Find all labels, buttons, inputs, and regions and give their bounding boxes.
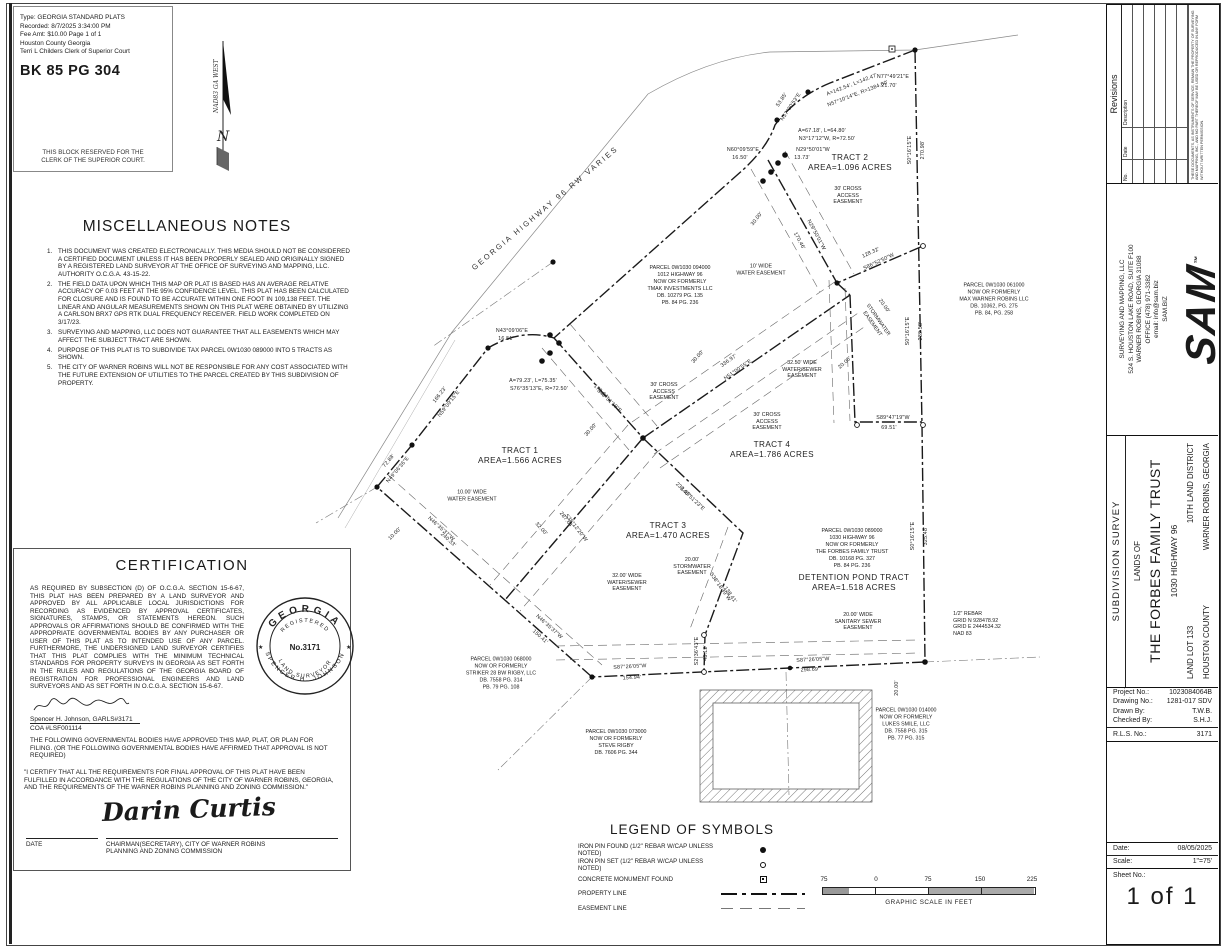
road-name-label: GEORGIA HIGHWAY 96 RW VARIES	[470, 144, 620, 272]
property-line-icon	[720, 893, 806, 895]
parcel-note: PARCEL 0W1030 014000NOW OR FORMERLYLUKES…	[876, 708, 937, 743]
revisions-table: No.DateDescription	[1122, 5, 1188, 183]
easement-note: 10' WIDEWATER EASEMENT	[736, 263, 785, 276]
pin-found-glyph	[760, 847, 766, 853]
revisions-empty-cell	[1144, 5, 1155, 127]
legend-item: PROPERTY LINE	[578, 887, 806, 902]
dimension-label: S2°36'43"E	[694, 637, 700, 666]
revisions-column-header: Description	[1122, 5, 1133, 127]
project-info-label: Project No.:	[1113, 689, 1149, 696]
legend-item-label: CONCRETE MONUMENT FOUND	[578, 876, 720, 883]
parcel-note: PARCEL 0W1030 068000NOW OR FORMERLYSTRIK…	[466, 657, 536, 692]
revisions-section: Revisions No.DateDescription THESE DOCUM…	[1107, 5, 1218, 184]
easement-line-icon	[720, 908, 806, 909]
revisions-column-header: No.	[1122, 159, 1133, 183]
sheet-label: Sheet No.:	[1113, 872, 1212, 879]
legend-item-label: PROPERTY LINE	[578, 890, 720, 897]
dimension-label: 20.00'	[877, 298, 891, 314]
project-info-row: Checked By:S.H.J.	[1107, 715, 1218, 724]
legend-title: LEGEND OF SYMBOLS	[578, 822, 806, 837]
easement-note: 20.00' WIDESANITARY SEWEREASEMENT	[835, 612, 882, 632]
pin-set-icon	[720, 862, 806, 868]
project-title-section: SUBDIVISION SURVEY LANDS OF THE FORBES F…	[1107, 435, 1218, 688]
scale-tick: 75	[924, 876, 931, 883]
date-value: 08/05/2025	[1178, 845, 1213, 852]
dimension-label: 30.00'	[750, 211, 764, 227]
city: WARNER ROBINS, GEORGIA	[1202, 443, 1211, 550]
site-address: 1030 HIGHWAY 96	[1169, 435, 1179, 687]
project-info-value: T.W.B.	[1192, 708, 1212, 715]
project-info-section: Project No.:1023084064BDrawing No.:1281-…	[1107, 687, 1218, 943]
company-address-line: email: info@sam.biz	[1153, 183, 1162, 435]
dimension-label: 10.00'	[387, 526, 402, 541]
tract-label: TRACT 3AREA=1.470 ACRES	[626, 521, 710, 541]
dimension-label: S48°51'19"E	[595, 388, 622, 414]
property-line-glyph	[721, 893, 805, 895]
scale-label: Scale:	[1113, 858, 1132, 865]
company-address-line: WARNER ROBINS, GEORGIA 31088	[1136, 183, 1145, 435]
stamp-area	[1107, 742, 1218, 843]
company-address-line: OFFICE (478) 971-3382	[1145, 183, 1154, 435]
scale-tick: 225	[1027, 876, 1038, 883]
dimension-label: S0°16'15"E	[910, 522, 916, 551]
dimension-label: N43°09'06"E	[496, 328, 528, 334]
dimension-label: S46°51'23"E	[678, 486, 705, 512]
dimension-label: 20.00'	[894, 680, 900, 695]
legend-item-label: IRON PIN FOUND (1/2" REBAR W/CAP UNLESS …	[578, 843, 720, 857]
sheet-number-box: Sheet No.: 1 of 1	[1107, 869, 1218, 914]
easement-note: 30' CROSSACCESSEASEMENT	[752, 412, 781, 432]
dimension-label: 30.00'	[584, 422, 599, 438]
dimension-label: 16.51'	[498, 336, 513, 342]
company-address-line: SAM.BIZ	[1162, 183, 1171, 435]
land-district: 10TH LAND DISTRICT	[1186, 443, 1195, 523]
easement-note: 20.00'STORMWATEREASEMENT	[673, 557, 711, 577]
map-labels: GEORGIA HIGHWAY 96 RW VARIESTRACT 1AREA=…	[0, 0, 1227, 949]
dimension-label: 48.12'	[703, 645, 709, 660]
sheet-value: 1 of 1	[1113, 883, 1212, 911]
easement-note: 30' CROSSACCESSEASEMENT	[649, 382, 678, 402]
dimension-label: S89°47'19"W	[876, 415, 909, 421]
project-info-row: Drawing No.:1281-017 SDV	[1107, 696, 1218, 705]
parcel-note: PARCEL 0W1030 0890001030 HIGHWAY 96NOW O…	[816, 528, 889, 570]
project-info-value: S.H.J.	[1193, 717, 1212, 724]
survey-type: SUBDIVISION SURVEY	[1107, 435, 1126, 687]
dimension-label: 30.00'	[691, 349, 706, 365]
easement-note: 30' CROSSACCESSEASEMENT	[833, 186, 862, 206]
parcel-note: PARCEL 0W1030 0940001012 HIGHWAY 96NOW O…	[647, 265, 712, 307]
project-info-label: Drawn By:	[1113, 708, 1145, 715]
dimension-label: 298.69'	[801, 667, 820, 674]
revisions-empty-cell	[1133, 127, 1144, 159]
dimension-label: 150.41'	[531, 629, 549, 646]
monument-icon	[720, 876, 806, 883]
dimension-label: S0°16'15"E	[905, 317, 911, 346]
dimension-label: 154.94'	[623, 675, 642, 682]
dimension-label: 20.00'	[837, 356, 853, 371]
owner-name: THE FORBES FAMILY TRUST	[1147, 435, 1163, 687]
project-info-value: 1023084064B	[1169, 689, 1212, 696]
pin-set-glyph	[760, 862, 766, 868]
dimension-label: 128.32'	[861, 246, 880, 259]
easement-note: 32.00' WIDEWATER/SEWEREASEMENT	[607, 573, 646, 593]
monument-glyph	[760, 876, 767, 883]
company-section: SURVEYING AND MAPPING, LLC524 S. HOUSTON…	[1107, 183, 1218, 436]
easement-note: 32.50' WIDEWATER/SEWEREASEMENT	[782, 360, 821, 380]
company-address: SURVEYING AND MAPPING, LLC524 S. HOUSTON…	[1119, 183, 1171, 435]
dimension-label: 325.48'	[923, 527, 929, 546]
scale-bar	[822, 887, 1036, 895]
graphic-scale: 75075150225 GRAPHIC SCALE IN FEET	[822, 876, 1036, 906]
dimension-label: A=67.18', L=64.80'	[798, 128, 846, 134]
project-info-value: 1281-017 SDV	[1167, 698, 1212, 705]
project-info-row: Drawn By:T.W.B.	[1107, 705, 1218, 714]
parcel-note: PARCEL 0W1030 073000NOW OR FORMERLYSTEVE…	[586, 729, 647, 757]
plat-sheet: Type: GEORGIA STANDARD PLATSRecorded: 8/…	[0, 0, 1227, 949]
revisions-empty-cell	[1166, 5, 1177, 127]
land-lot: LAND LOT 133	[1186, 626, 1195, 679]
dimension-label: S0°16'15"E	[907, 136, 913, 165]
dimension-label: S87°26'05"W	[613, 663, 647, 671]
legend-item: IRON PIN SET (1/2" REBAR W/CAP UNLESS NO…	[578, 858, 806, 873]
sam-logo: SAM™	[1177, 183, 1218, 436]
legend-item-label: EASEMENT LINE	[578, 905, 720, 912]
tract-label: TRACT 4AREA=1.786 ACRES	[730, 440, 814, 460]
revisions-empty-cell	[1166, 127, 1177, 159]
legend-item: IRON PIN FOUND (1/2" REBAR W/CAP UNLESS …	[578, 843, 806, 858]
dimension-label: 270.98'	[920, 141, 926, 160]
revisions-empty-cell	[1155, 127, 1166, 159]
dimension-label: 239.58'	[918, 322, 924, 341]
revisions-column-header: Date	[1122, 127, 1133, 159]
tract-label: TRACT 1AREA=1.566 ACRES	[478, 446, 562, 466]
revisions-empty-cell	[1133, 5, 1144, 127]
revisions-empty-cell	[1155, 5, 1166, 127]
dimension-label: 72.88'	[382, 453, 397, 469]
easement-line-glyph	[721, 908, 805, 909]
legend-rows: IRON PIN FOUND (1/2" REBAR W/CAP UNLESS …	[578, 843, 806, 916]
scale-caption: GRAPHIC SCALE IN FEET	[822, 899, 1036, 906]
tract-label: DETENTION POND TRACTAREA=1.518 ACRES	[799, 573, 910, 593]
dimension-label: 32.00'	[534, 521, 549, 537]
county: HOUSTON COUNTY	[1202, 605, 1211, 679]
rls-value: 3171	[1197, 731, 1212, 738]
dimension-label: S87°26'05"W	[796, 656, 830, 664]
easement-note: 10.00' WIDEWATER EASEMENT	[447, 489, 496, 502]
revisions-title: Revisions	[1107, 5, 1122, 183]
legend-item: CONCRETE MONUMENT FOUND	[578, 872, 806, 887]
date-label: Date:	[1113, 845, 1129, 852]
dimension-label: S76°35'13"E, R=72.50'	[510, 386, 568, 392]
revisions-empty-cell	[1155, 159, 1166, 183]
revisions-empty-cell	[1177, 5, 1188, 127]
dimension-label: 69.51'	[881, 425, 896, 431]
scale-value: 1"=75'	[1193, 858, 1212, 865]
dimension-label: 170.46'	[792, 231, 806, 250]
pin-found-icon	[720, 847, 806, 853]
dimension-label: 21.70'	[881, 83, 896, 89]
legend-item: EASEMENT LINE	[578, 901, 806, 916]
title-block-sidebar: Revisions No.DateDescription THESE DOCUM…	[1106, 4, 1220, 945]
project-info-rows: Project No.:1023084064BDrawing No.:1281-…	[1107, 687, 1218, 724]
lands-of-label: LANDS OF	[1133, 435, 1142, 687]
project-info-label: Drawing No.:	[1113, 698, 1153, 705]
dimension-label: N77°49'21"E	[877, 74, 909, 80]
ownership-disclaimer: THESE DOCUMENTS, AS INSTRUMENTS OF SERVI…	[1188, 5, 1206, 183]
scale-ticks: 75075150225	[822, 876, 1036, 885]
revisions-empty-cell	[1166, 159, 1177, 183]
revisions-empty-cell	[1177, 159, 1188, 183]
company-address-line: SURVEYING AND MAPPING, LLC	[1119, 183, 1128, 435]
revisions-empty-cell	[1133, 159, 1144, 183]
tract-label: TRACT 2AREA=1.096 ACRES	[808, 153, 892, 173]
project-info-row: Project No.:1023084064B	[1107, 687, 1218, 696]
revisions-empty-cell	[1144, 159, 1155, 183]
dimension-label: N60°09'59"E	[727, 147, 759, 153]
dimension-label: 16.50'	[732, 155, 747, 161]
revisions-empty-cell	[1177, 127, 1188, 159]
scale-tick: 75	[820, 876, 827, 883]
easement-note: 1/2" REBARGRID N 928478.92GRID E 2444534…	[953, 611, 1001, 637]
dimension-label: N29°50'01"W	[805, 219, 826, 252]
scale-tick: 150	[975, 876, 986, 883]
dimension-label: 13.73'	[794, 155, 809, 161]
company-address-line: 524 S. HOUSTON LAKE ROAD, SUITE F100	[1128, 183, 1137, 435]
parcel-note: PARCEL 0W1030 061000NOW OR FORMERLYMAX W…	[959, 283, 1028, 318]
legend-of-symbols: LEGEND OF SYMBOLS IRON PIN FOUND (1/2" R…	[578, 822, 806, 916]
dimension-label: A=79.23', L=75.35'	[509, 378, 557, 384]
dimension-label: S38°12'20"W	[563, 513, 588, 543]
dimension-label: N29°50'01"W	[796, 147, 830, 153]
dimension-label: N3°17'12"W, R=72.50'	[799, 136, 855, 142]
revisions-empty-cell	[1144, 127, 1155, 159]
legend-item-label: IRON PIN SET (1/2" REBAR W/CAP UNLESS NO…	[578, 858, 720, 872]
scale-tick: 0	[874, 876, 878, 883]
rls-label: R.L.S. No.:	[1113, 731, 1147, 738]
project-info-label: Checked By:	[1113, 717, 1152, 724]
